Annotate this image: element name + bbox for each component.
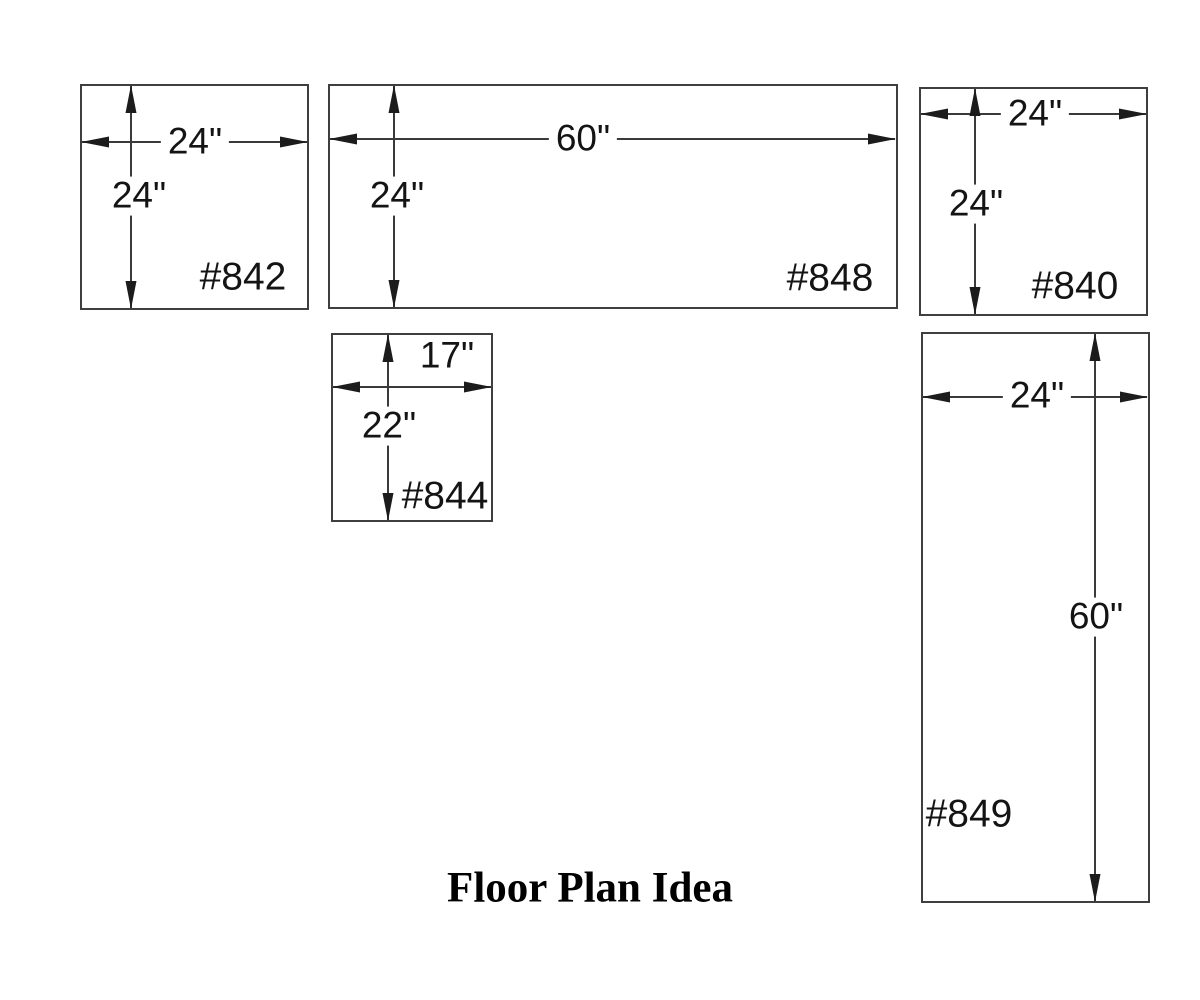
dim-text-849-height: 60"	[1062, 598, 1130, 637]
dim-text-844-height: 22"	[355, 407, 423, 446]
dim-text-842-width: 24"	[161, 123, 229, 162]
unit-label-842: #842	[200, 258, 287, 299]
unit-label-849: #849	[926, 795, 1013, 836]
dim-text-840-height: 24"	[942, 185, 1010, 224]
dim-text-849-width: 24"	[1003, 377, 1071, 416]
dim-text-848-width: 60"	[549, 120, 617, 159]
page-title: Floor Plan Idea	[447, 864, 733, 913]
dim-text-844-width: 17"	[413, 337, 481, 376]
dim-text-840-width: 24"	[1001, 95, 1069, 134]
floor-plan-canvas: 24" 24" 60" 24" 24" 24" 17" 22" 24" 60" …	[0, 0, 1200, 1000]
unit-label-844: #844	[402, 477, 489, 518]
unit-label-840: #840	[1032, 267, 1119, 308]
unit-label-848: #848	[787, 259, 874, 300]
dim-text-848-height: 24"	[363, 177, 431, 216]
dim-text-842-height: 24"	[105, 177, 173, 216]
